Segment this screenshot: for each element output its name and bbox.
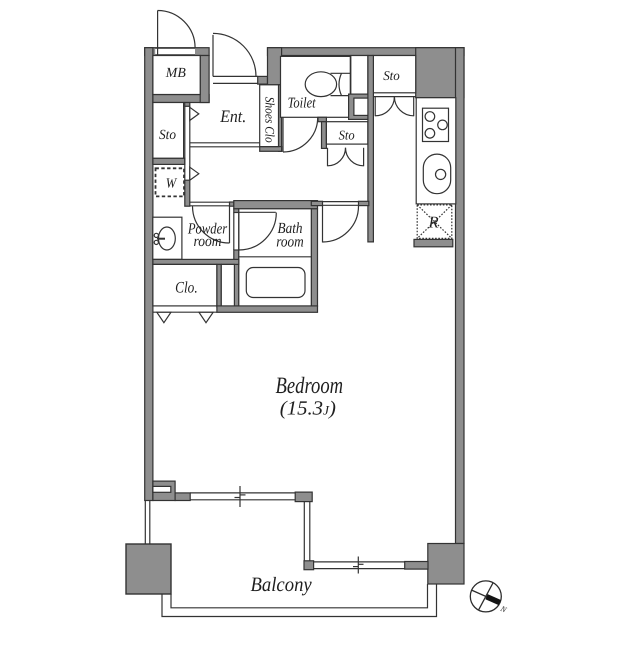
svg-text:Sto: Sto [159,128,176,143]
svg-text:Clo.: Clo. [175,280,198,297]
svg-text:Sto: Sto [383,68,400,83]
svg-text:W: W [166,177,178,192]
svg-text:Sto: Sto [339,128,355,143]
svg-text:MB: MB [165,66,186,81]
svg-text:room: room [276,234,304,251]
svg-text:Toilet: Toilet [288,96,317,112]
svg-text:Bedroom: Bedroom [276,373,344,399]
svg-text:Shoes Clo: Shoes Clo [263,97,278,143]
svg-text:Ent.: Ent. [219,106,246,126]
svg-text:Balcony: Balcony [251,574,313,596]
svg-text:R: R [427,213,438,232]
svg-text:room: room [194,233,222,250]
